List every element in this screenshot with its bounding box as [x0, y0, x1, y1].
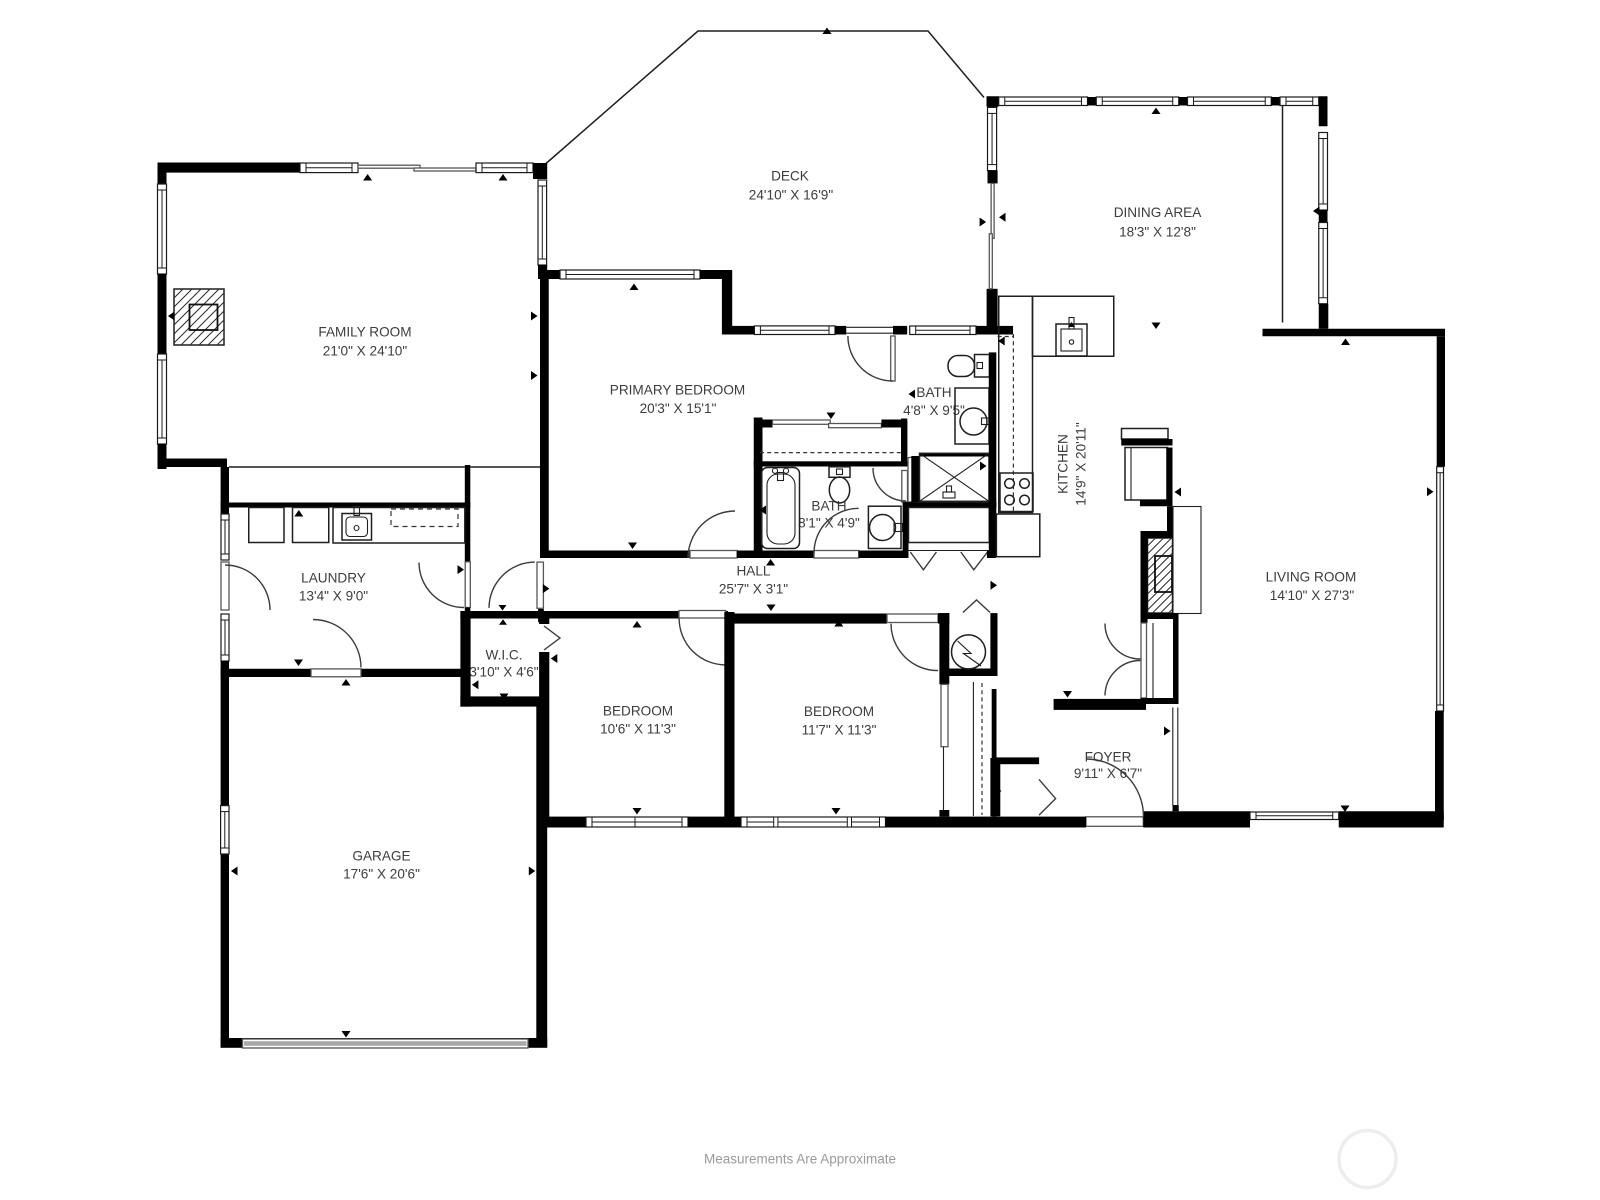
svg-text:LIVING ROOM: LIVING ROOM [1266, 570, 1357, 585]
svg-text:14'10" X 27'3": 14'10" X 27'3" [1270, 588, 1355, 603]
svg-text:LAUNDRY: LAUNDRY [301, 571, 366, 586]
svg-text:20'3" X 15'1": 20'3" X 15'1" [640, 401, 717, 416]
svg-text:14'9" X 20'11": 14'9" X 20'11" [1074, 422, 1089, 506]
svg-text:FAMILY ROOM: FAMILY ROOM [318, 325, 411, 340]
svg-text:BATH: BATH [916, 385, 951, 400]
svg-text:FOYER: FOYER [1085, 750, 1132, 765]
svg-text:13'4" X 9'0": 13'4" X 9'0" [299, 589, 368, 604]
svg-text:21'0" X 24'10": 21'0" X 24'10" [323, 344, 408, 359]
svg-text:17'6" X 20'6": 17'6" X 20'6" [343, 867, 420, 882]
svg-text:25'7" X 3'1": 25'7" X 3'1" [719, 582, 788, 597]
svg-text:Measurements Are Approximate: Measurements Are Approximate [704, 1152, 896, 1167]
svg-text:DECK: DECK [771, 169, 809, 184]
svg-text:9'11" X 6'7": 9'11" X 6'7" [1074, 766, 1142, 781]
svg-text:11'7" X 11'3": 11'7" X 11'3" [802, 723, 877, 738]
svg-text:8'1" X 4'9": 8'1" X 4'9" [798, 516, 860, 531]
svg-text:PRIMARY BEDROOM: PRIMARY BEDROOM [610, 383, 745, 398]
svg-text:18'3" X 12'8": 18'3" X 12'8" [1119, 225, 1196, 240]
svg-text:DINING AREA: DINING AREA [1114, 205, 1203, 220]
svg-text:W.I.C.: W.I.C. [485, 648, 522, 663]
svg-text:10'6" X 11'3": 10'6" X 11'3" [600, 722, 676, 737]
svg-text:HALL: HALL [736, 564, 770, 579]
svg-text:KITCHEN: KITCHEN [1056, 434, 1071, 494]
svg-text:GARAGE: GARAGE [352, 849, 410, 864]
svg-text:BEDROOM: BEDROOM [603, 704, 673, 719]
svg-text:24'10" X 16'9": 24'10" X 16'9" [749, 188, 834, 203]
svg-text:BEDROOM: BEDROOM [804, 704, 874, 719]
svg-text:3'10" X 4'6": 3'10" X 4'6" [469, 665, 538, 680]
